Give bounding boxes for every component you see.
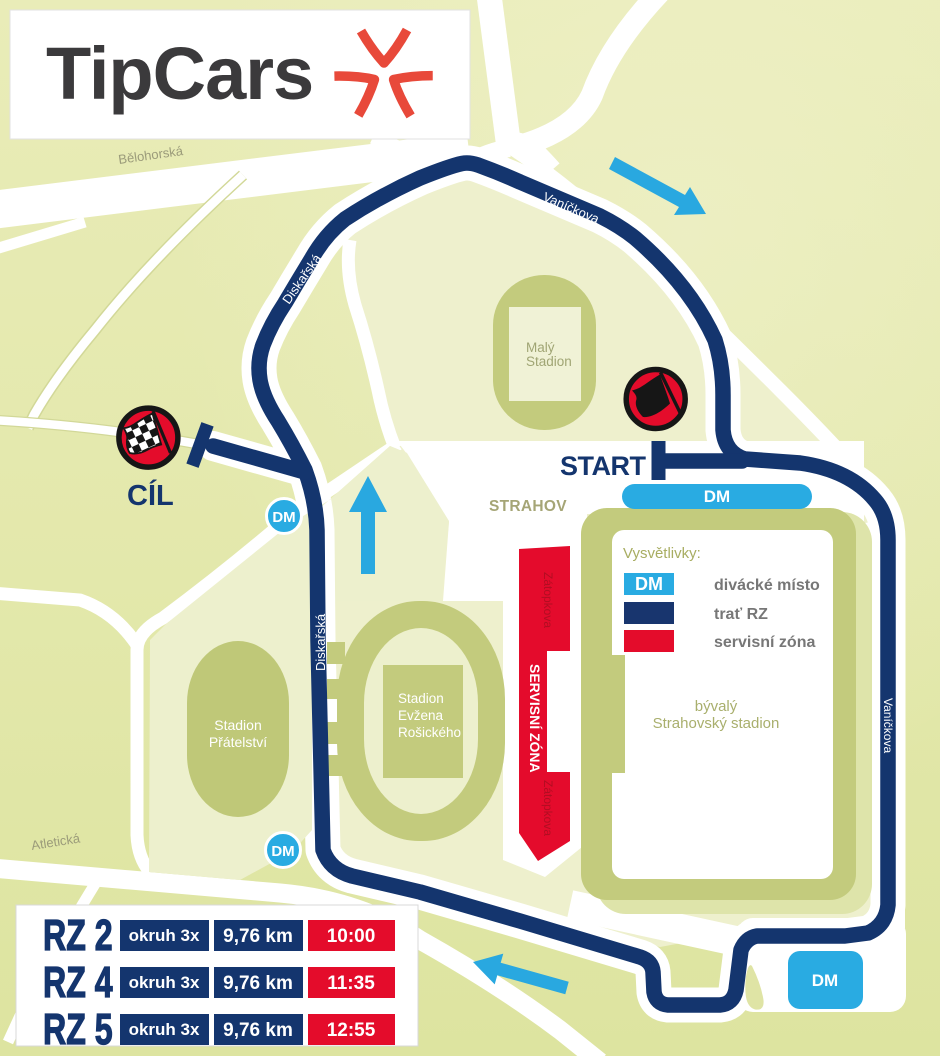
svg-text:Diskařská: Diskařská: [313, 613, 328, 671]
svg-text:RZ 4: RZ 4: [43, 958, 113, 1007]
svg-text:Přátelství: Přátelství: [209, 734, 267, 750]
svg-text:Vysvětlivky:: Vysvětlivky:: [623, 545, 701, 562]
svg-text:Strahovský stadion: Strahovský stadion: [653, 715, 780, 732]
svg-text:Malý: Malý: [526, 340, 555, 355]
svg-text:Zátopkova: Zátopkova: [541, 780, 555, 836]
svg-text:START: START: [560, 451, 646, 481]
svg-text:Evžena: Evžena: [398, 708, 444, 723]
svg-text:9,76 km: 9,76 km: [223, 1020, 293, 1041]
svg-text:Stadion: Stadion: [214, 717, 261, 733]
svg-text:12:55: 12:55: [327, 1020, 376, 1041]
svg-text:Stadion: Stadion: [526, 354, 572, 369]
svg-text:okruh 3x: okruh 3x: [129, 973, 200, 992]
svg-text:TipCars: TipCars: [46, 32, 313, 115]
svg-text:servisní zóna: servisní zóna: [714, 634, 815, 651]
svg-text:DM: DM: [704, 487, 730, 506]
svg-text:10:00: 10:00: [327, 926, 376, 947]
svg-text:STRAHOV: STRAHOV: [489, 498, 567, 515]
svg-text:trať RZ: trať RZ: [714, 606, 768, 623]
svg-text:divácké místo: divácké místo: [714, 577, 820, 594]
svg-text:9,76 km: 9,76 km: [223, 973, 293, 994]
svg-text:DM: DM: [271, 843, 294, 860]
svg-text:Rošického: Rošického: [398, 725, 461, 740]
svg-text:okruh 3x: okruh 3x: [129, 926, 200, 945]
svg-text:SERVISNÍ ZÓNA: SERVISNÍ ZÓNA: [527, 664, 544, 773]
svg-text:DM: DM: [635, 574, 663, 594]
svg-text:Vaníčkova: Vaníčkova: [881, 698, 895, 753]
svg-text:Zátopkova: Zátopkova: [541, 572, 555, 628]
svg-text:RZ 2: RZ 2: [43, 911, 113, 960]
svg-text:okruh 3x: okruh 3x: [129, 1020, 200, 1039]
svg-text:9,76 km: 9,76 km: [223, 926, 293, 947]
svg-text:bývalý: bývalý: [695, 698, 738, 715]
svg-text:RZ 5: RZ 5: [43, 1005, 113, 1054]
svg-text:11:35: 11:35: [327, 973, 375, 994]
svg-text:CÍL: CÍL: [127, 478, 174, 512]
svg-text:Stadion: Stadion: [398, 691, 444, 706]
svg-text:DM: DM: [812, 971, 838, 990]
svg-text:DM: DM: [272, 509, 295, 526]
